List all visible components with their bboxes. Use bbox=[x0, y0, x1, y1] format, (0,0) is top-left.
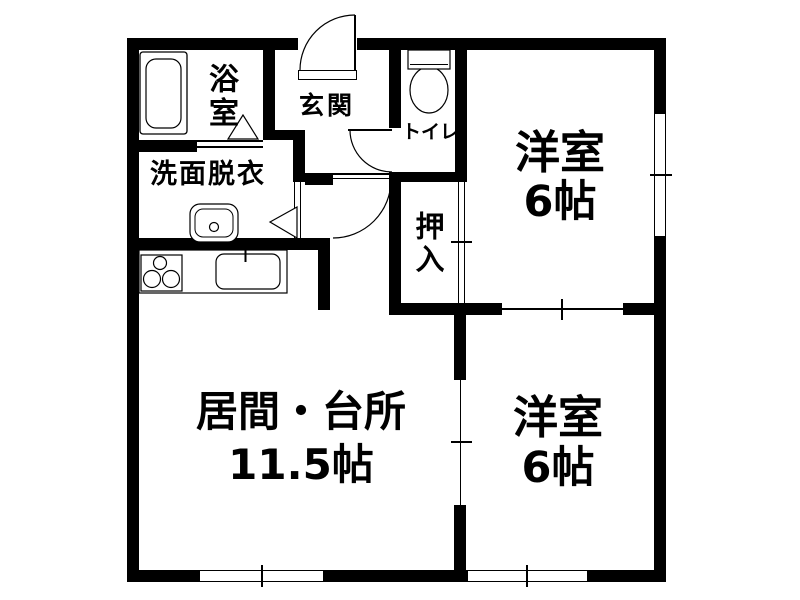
room-label-bedroom-bottom: 洋室 bbox=[468, 395, 648, 440]
room-label-closet: 押入 bbox=[413, 211, 442, 277]
stove-burner bbox=[154, 257, 167, 270]
stove-burner bbox=[144, 271, 161, 288]
room-size-bedroom-top: 6帖 bbox=[470, 181, 650, 224]
hall-living-door-arc bbox=[333, 180, 391, 238]
entrance-hall-door-arc bbox=[350, 130, 392, 172]
room-label-washroom: 洗面脱衣 bbox=[150, 161, 266, 188]
toilet-icon bbox=[410, 67, 448, 113]
kitchen-sink-icon bbox=[216, 254, 280, 289]
floor-plan: 浴室 洗面脱衣 玄関 トイレ 押入 洋室 6帖 洋室 6帖 居間・台所 11.5… bbox=[0, 0, 800, 600]
room-label-bedroom-top: 洋室 bbox=[470, 130, 650, 175]
room-label-toilet: トイレ bbox=[402, 123, 459, 142]
room-label-entrance: 玄関 bbox=[299, 93, 355, 118]
fixtures-layer bbox=[0, 0, 800, 600]
washbasin-drain bbox=[210, 223, 219, 232]
toilet-tank bbox=[408, 50, 450, 69]
bathtub-inner bbox=[146, 59, 181, 128]
room-label-bathroom: 浴室 bbox=[205, 63, 235, 131]
entrance-door-arc bbox=[300, 15, 355, 70]
stove-burner bbox=[163, 271, 180, 288]
wash-folding-door-triangle bbox=[270, 207, 297, 238]
room-label-living-kitchen: 居間・台所 bbox=[151, 391, 451, 433]
room-size-living-kitchen: 11.5帖 bbox=[151, 444, 451, 486]
room-size-bedroom-bottom: 6帖 bbox=[468, 447, 648, 490]
